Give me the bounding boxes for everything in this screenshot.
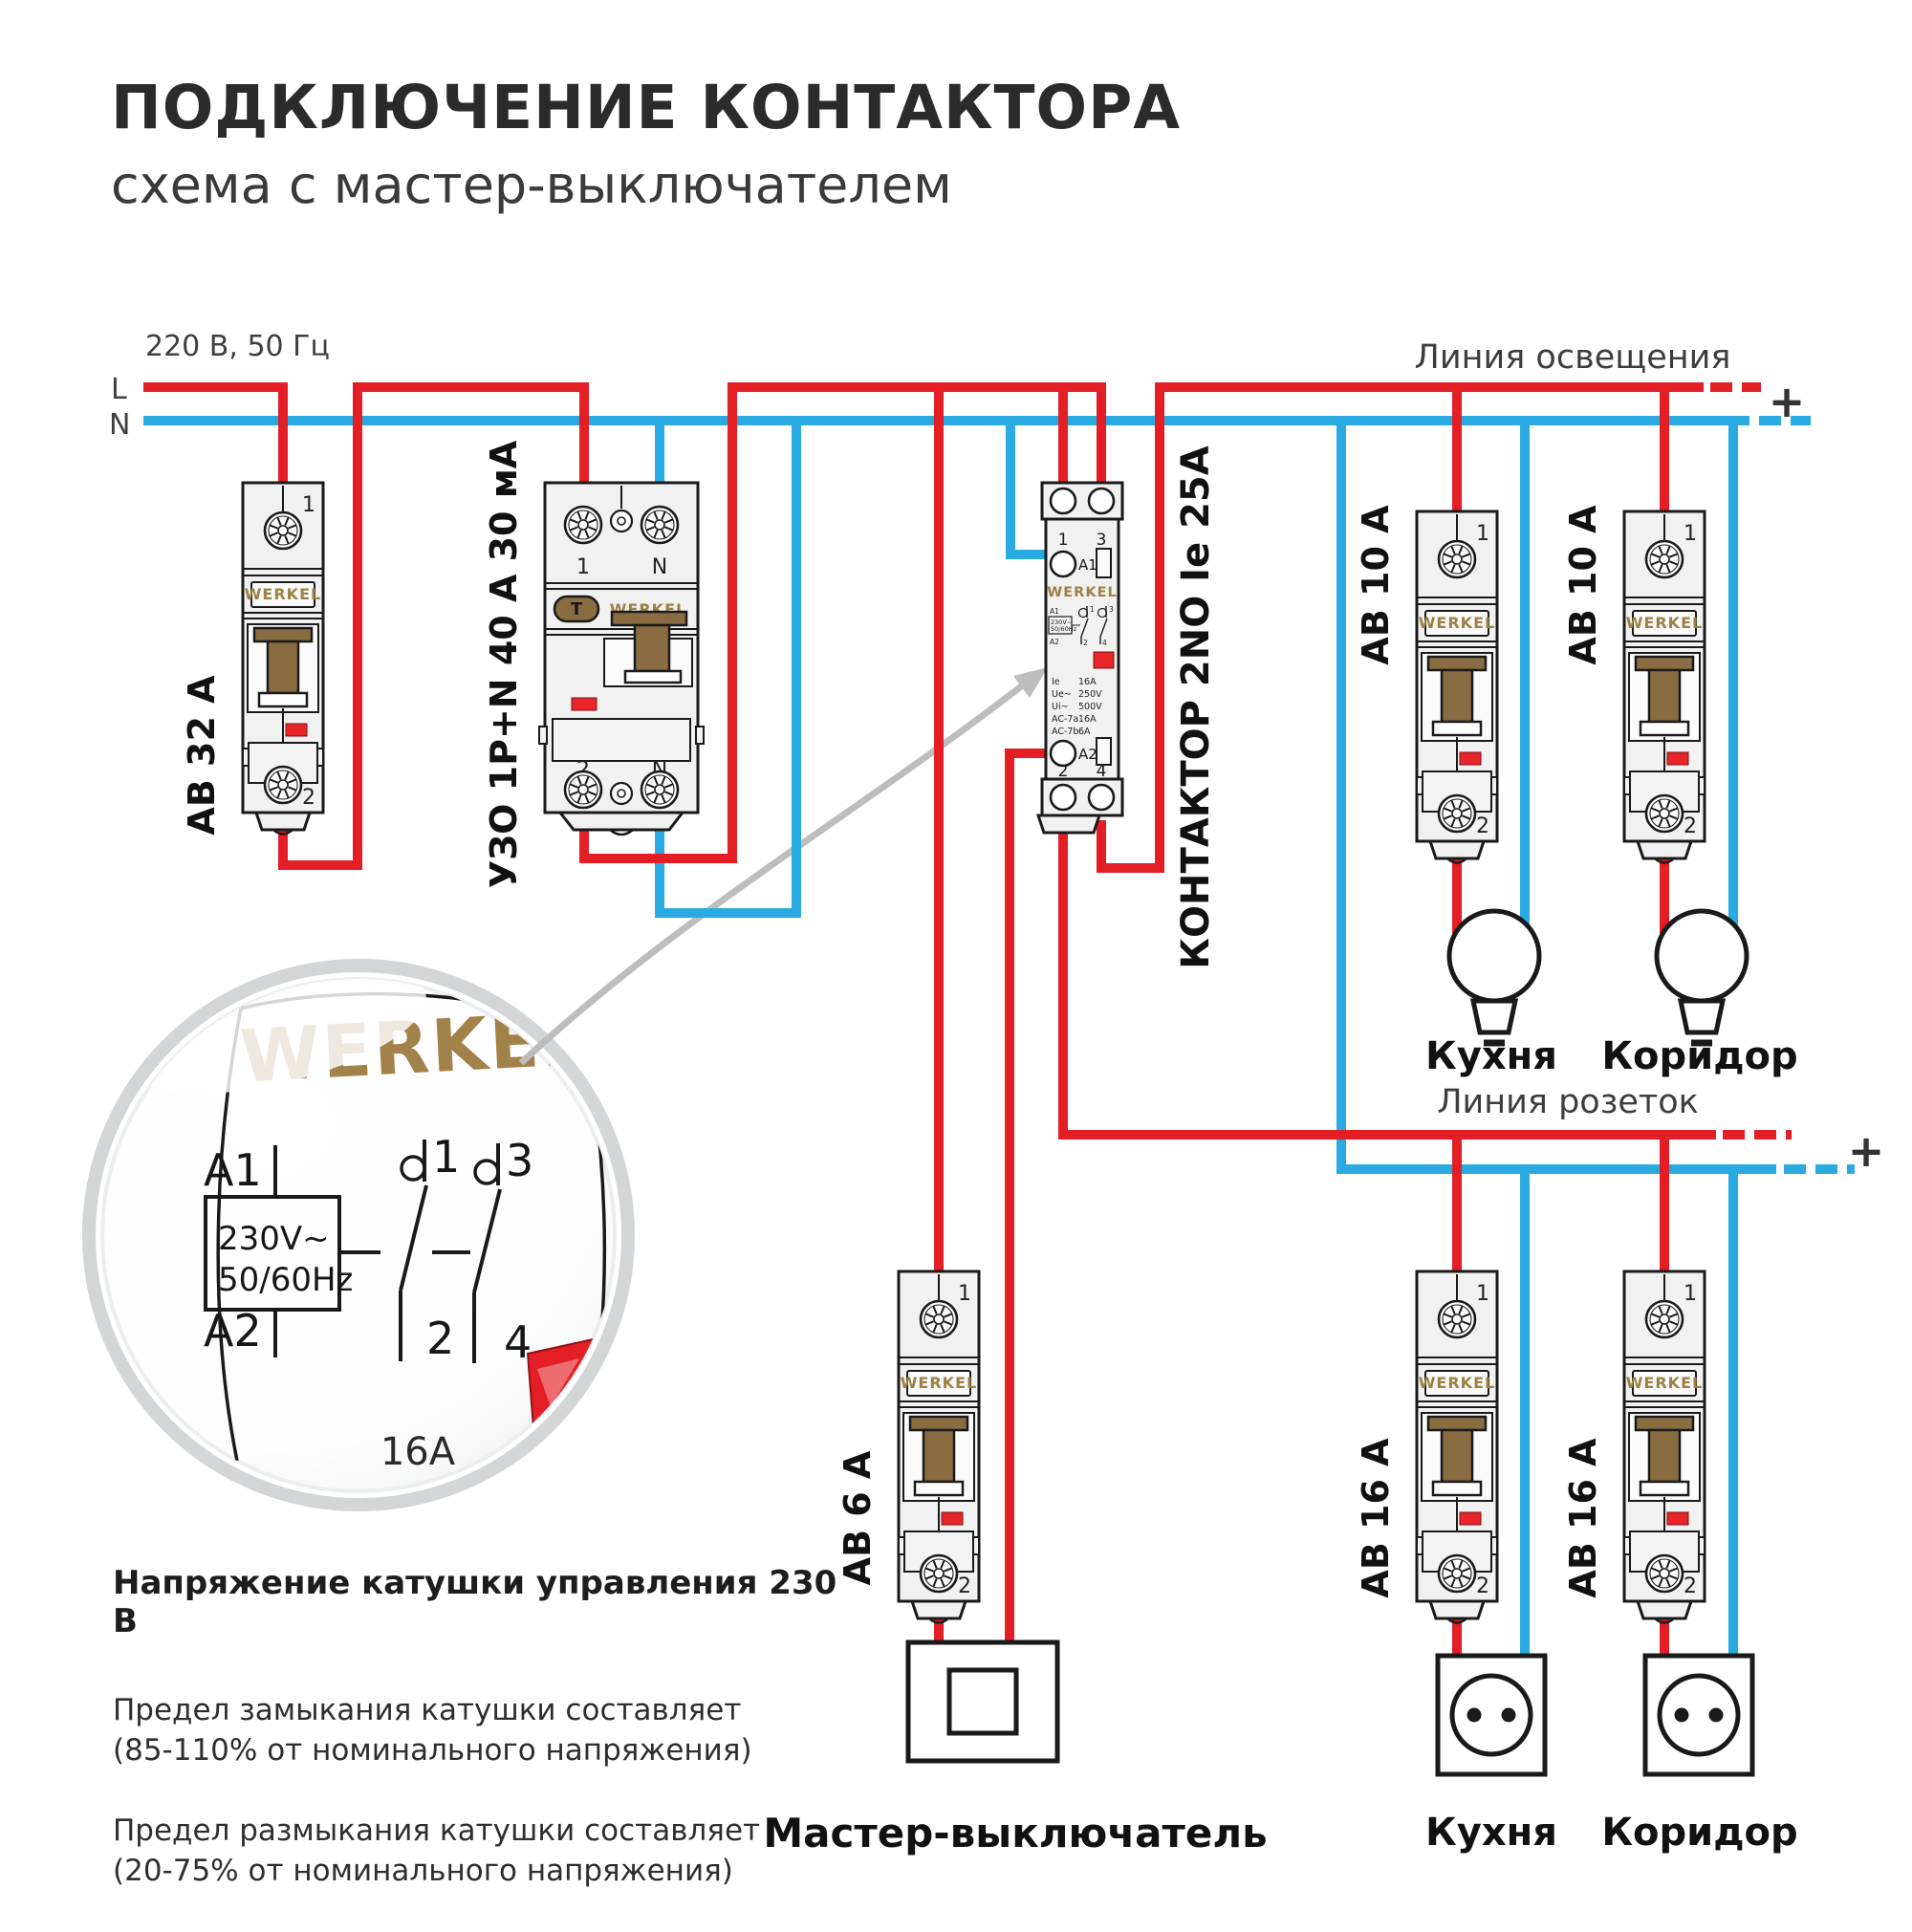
socket-kitchen xyxy=(1438,1656,1545,1774)
notes-paragraph-2: Предел размыкания катушки составляет (20… xyxy=(113,1811,839,1891)
lens-contact-1: 1 xyxy=(432,1131,460,1183)
av10c-brand: WERKEL xyxy=(1626,614,1703,632)
spec-v-2: 500V xyxy=(1078,702,1102,712)
socket-corridor xyxy=(1645,1656,1752,1774)
contactor-a1-terminal xyxy=(1051,552,1075,576)
wire-l-av32-to-uzo xyxy=(283,387,584,865)
socket-kitchen-label: Кухня xyxy=(1425,1811,1557,1855)
breaker-av32: 1 2 WERKEL xyxy=(243,483,323,835)
spec-k-3: AC-7a xyxy=(1052,714,1078,725)
lens-rating: 16A xyxy=(380,1430,456,1474)
lamp-corridor-base xyxy=(1681,1001,1723,1032)
uzo-label: УЗО 1P+N 40 А 30 мА xyxy=(483,440,525,888)
uzo-terminal-n-top: N xyxy=(652,555,667,579)
contactor-label: КОНТАКТОР 2NO Ie 25А xyxy=(1174,445,1218,968)
lens-contact-3: 3 xyxy=(506,1135,533,1186)
av10k-terminal-2: 2 xyxy=(1476,814,1489,838)
av10k-brand: WERKEL xyxy=(1419,614,1495,632)
wire-l-supply xyxy=(143,387,283,488)
av16k-brand: WERKEL xyxy=(1419,1374,1495,1392)
notes-p1-line1: Предел замыкания катушки составляет xyxy=(113,1693,741,1727)
breaker-av16-corridor: 1 2 WERKEL xyxy=(1624,1271,1705,1623)
supply-n-label: N xyxy=(109,408,130,442)
supply-l-label: L xyxy=(111,373,127,406)
notes-p2-line1: Предел размыкания катушки составляет xyxy=(113,1813,760,1848)
contactor: 1 3 A1 WERKEL A1 230V~ 50/60Hz A2 1 3 2 … xyxy=(1038,483,1122,833)
av6-brand: WERKEL xyxy=(901,1374,977,1392)
lens-contact-2: 2 xyxy=(426,1313,454,1364)
av32-brand: WERKEL xyxy=(245,585,321,603)
mini-c2: 2 xyxy=(1083,639,1088,647)
lens-volt: 230V~ xyxy=(218,1220,330,1258)
av10k-terminal-1: 1 xyxy=(1476,522,1489,546)
lens-a1-label: A1 xyxy=(204,1144,262,1196)
av10c-terminal-1: 1 xyxy=(1684,522,1697,546)
contactor-indicator xyxy=(1094,652,1114,668)
magnifier-lens: WERKEL A1 230V~ 50/60Hz A2 1 3 2 4 xyxy=(89,943,628,1505)
lamp-corridor xyxy=(1657,911,1747,1043)
socket-kitchen-pin-l xyxy=(1467,1708,1482,1723)
av16k-terminal-1: 1 xyxy=(1476,1282,1489,1306)
av32-label: АВ 32 А xyxy=(181,675,223,836)
notes-p2-line2: (20-75% от номинального напряжения) xyxy=(113,1854,733,1888)
av16c-terminal-2: 2 xyxy=(1684,1574,1697,1598)
lamp-kitchen xyxy=(1449,911,1539,1043)
av10c-terminal-2: 2 xyxy=(1684,814,1697,838)
av16c-brand: WERKEL xyxy=(1626,1374,1703,1392)
mini-c1: 1 xyxy=(1090,605,1095,614)
av32-terminal-2: 2 xyxy=(302,786,315,810)
notes-p1-line2: (85-110% от номинального напряжения) xyxy=(113,1733,752,1768)
av32-terminal-1: 1 xyxy=(302,493,315,517)
mini-c3: 3 xyxy=(1109,605,1114,614)
socket-corridor-label: Коридор xyxy=(1601,1811,1797,1855)
socket-line-plus: + xyxy=(1848,1125,1885,1177)
spec-v-0: 16A xyxy=(1078,677,1097,687)
spec-v-4: 6A xyxy=(1078,727,1091,737)
socket-corridor-pin-l xyxy=(1675,1708,1689,1723)
contactor-a2-label: A2 xyxy=(1078,746,1097,763)
uzo-terminal-1: 1 xyxy=(576,555,590,579)
mini-a2: A2 xyxy=(1050,638,1059,646)
uzo-test-label: T xyxy=(571,599,583,619)
lens-a2-label: A2 xyxy=(204,1305,262,1357)
breaker-av6: 1 2 WERKEL xyxy=(899,1271,979,1623)
contactor-a1-label: A1 xyxy=(1078,556,1097,574)
notes-block: Напряжение катушки управления 230 В Пред… xyxy=(113,1564,839,1932)
arrow-head xyxy=(1013,667,1048,698)
page-title: ПОДКЛЮЧЕНИЕ КОНТАКТОРА xyxy=(111,73,1181,142)
av6-terminal-1: 1 xyxy=(958,1282,971,1306)
av16-kitchen-label: АВ 16 А xyxy=(1355,1438,1397,1598)
supply-voltage-label: 220 В, 50 Гц xyxy=(145,330,330,363)
contactor-terminal-3: 3 xyxy=(1097,531,1107,550)
mini-a1: A1 xyxy=(1050,607,1059,616)
master-switch xyxy=(908,1642,1057,1761)
socket-line-label: Линия розеток xyxy=(1437,1083,1699,1121)
spec-v-3: 16A xyxy=(1078,714,1097,725)
socket-kitchen-well xyxy=(1452,1676,1531,1754)
lighting-line-label: Линия освещения xyxy=(1415,338,1731,377)
master-switch-key xyxy=(949,1670,1016,1733)
notes-heading: Напряжение катушки управления 230 В xyxy=(113,1564,839,1640)
av6-label: АВ 6 А xyxy=(836,1450,879,1585)
mini-freq: 50/60Hz xyxy=(1051,625,1077,633)
breaker-av10-corridor: 1 2 WERKEL xyxy=(1624,511,1705,863)
rcd-uzo: 1 N T WERKEL 2 N xyxy=(539,483,704,835)
mini-c4: 4 xyxy=(1102,639,1107,647)
uzo-indicator xyxy=(572,698,597,710)
page-subtitle: схема с мастер-выключателем xyxy=(111,155,952,215)
lens-freq: 50/60Hz xyxy=(218,1261,353,1299)
spec-k-4: AC-7b xyxy=(1052,727,1078,737)
av16-corridor-label: АВ 16 А xyxy=(1562,1438,1604,1598)
lamp-kitchen-bulb xyxy=(1449,911,1539,1001)
spec-k-2: Ui~ xyxy=(1052,702,1069,712)
contactor-terminal-1: 1 xyxy=(1058,531,1069,550)
breaker-av16-kitchen: 1 2 WERKEL xyxy=(1417,1271,1497,1623)
socket-kitchen-pin-r xyxy=(1502,1708,1516,1723)
breaker-av10-kitchen: 1 2 WERKEL xyxy=(1417,511,1497,863)
av6-terminal-2: 2 xyxy=(958,1574,971,1598)
av16k-terminal-2: 2 xyxy=(1476,1574,1489,1598)
av16c-terminal-1: 1 xyxy=(1684,1282,1697,1306)
av10-corridor-label: АВ 10 А xyxy=(1562,505,1604,665)
lamp-corridor-label: Коридор xyxy=(1601,1034,1797,1078)
spec-k-1: Ue~ xyxy=(1052,689,1072,700)
notes-paragraph-1: Предел замыкания катушки составляет (85-… xyxy=(113,1690,839,1770)
lighting-line-plus: + xyxy=(1769,376,1806,427)
wire-l-coil-a2-to-switch xyxy=(1010,753,1052,1646)
av10-kitchen-label: АВ 10 А xyxy=(1355,505,1397,665)
socket-corridor-well xyxy=(1660,1676,1738,1754)
lamp-corridor-bulb xyxy=(1657,911,1747,1001)
spec-v-1: 250V xyxy=(1078,689,1102,700)
contactor-brand: WERKEL xyxy=(1047,585,1117,600)
socket-corridor-pin-r xyxy=(1709,1708,1724,1723)
lamp-kitchen-label: Кухня xyxy=(1425,1034,1557,1078)
lamp-kitchen-base xyxy=(1473,1001,1515,1032)
spec-k-0: Ie xyxy=(1052,677,1060,687)
